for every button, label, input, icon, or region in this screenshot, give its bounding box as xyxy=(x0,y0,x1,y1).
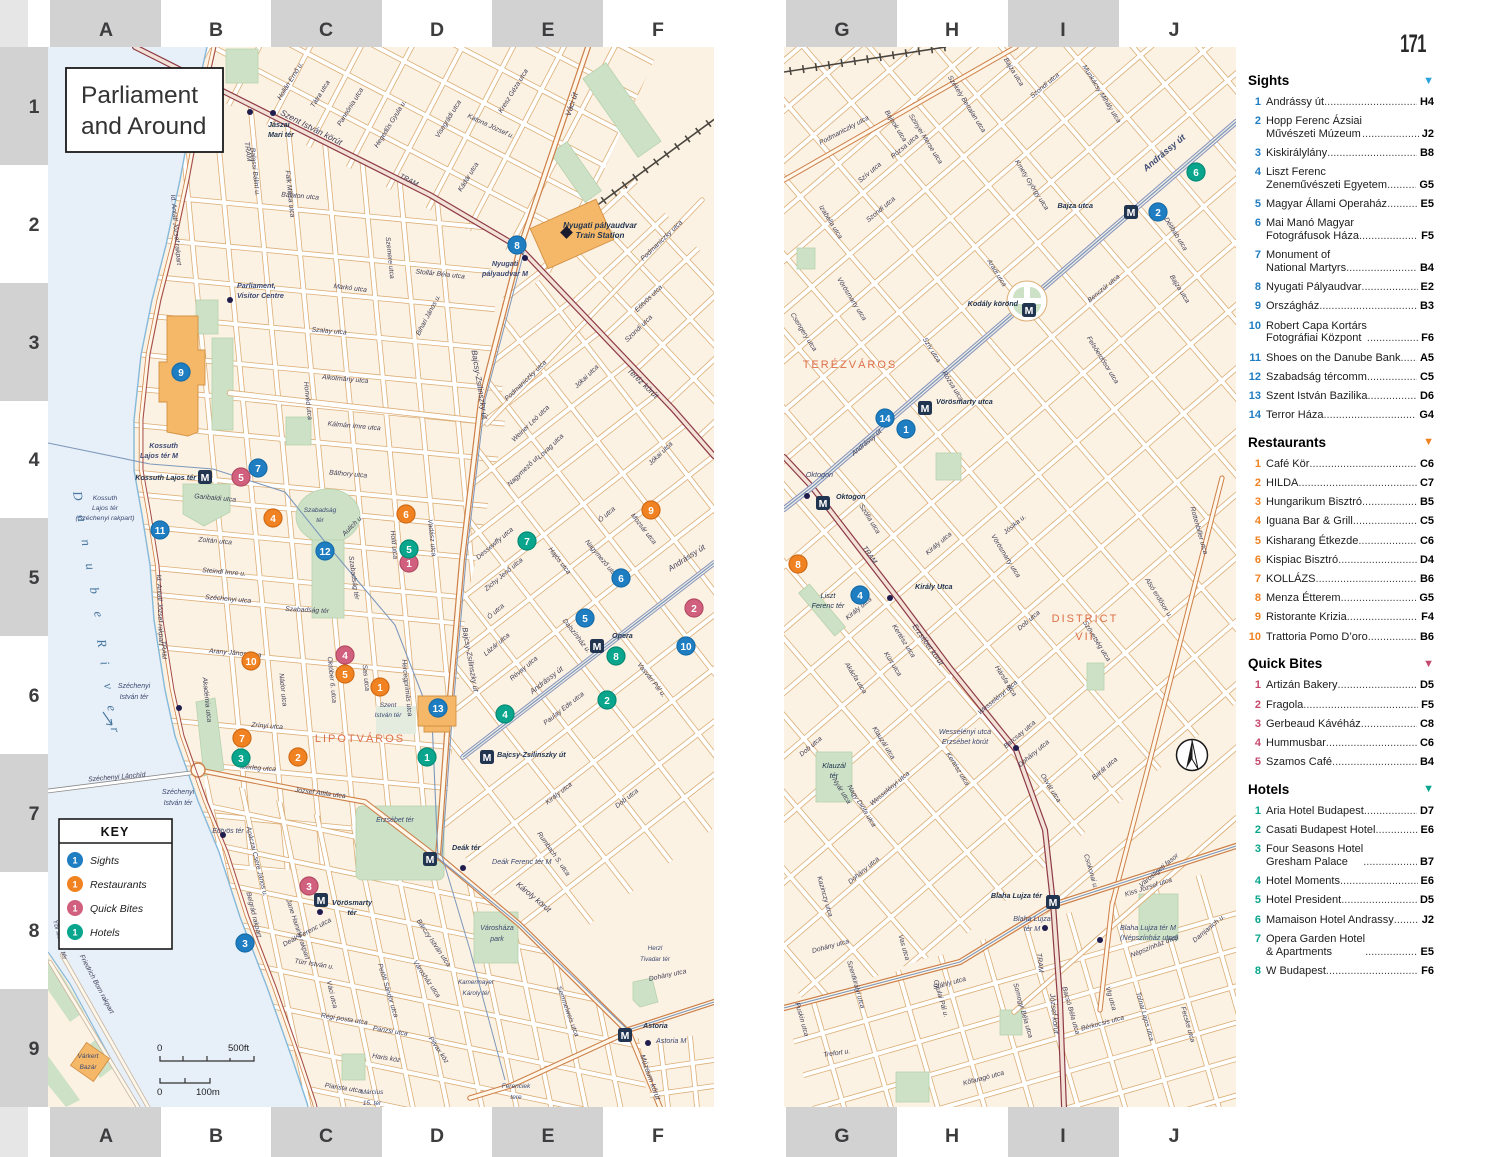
svg-text:Deák tér: Deák tér xyxy=(452,843,482,852)
svg-text:Mari tér: Mari tér xyxy=(268,130,295,139)
svg-text:Bajcsy-Zsilinszky út: Bajcsy-Zsilinszky út xyxy=(497,750,566,759)
svg-text:Szent: Szent xyxy=(380,702,398,709)
svg-text:15. tér: 15. tér xyxy=(363,1100,382,1107)
svg-text:6: 6 xyxy=(618,574,624,585)
svg-text:5: 5 xyxy=(238,473,244,484)
svg-text:5: 5 xyxy=(29,567,40,589)
svg-text:1: 1 xyxy=(424,753,430,764)
svg-text:TRAM: TRAM xyxy=(160,641,168,660)
svg-text:B: B xyxy=(209,19,223,41)
svg-text:11: 11 xyxy=(155,526,166,537)
svg-text:KEY: KEY xyxy=(101,825,130,839)
svg-text:0: 0 xyxy=(157,1043,162,1054)
svg-text:Lajos tér M: Lajos tér M xyxy=(140,451,179,460)
svg-text:4: 4 xyxy=(342,651,348,662)
svg-text:Vörösmarty utca: Vörösmarty utca xyxy=(936,397,993,406)
svg-text:3: 3 xyxy=(306,882,312,893)
svg-text:9: 9 xyxy=(29,1038,40,1060)
svg-text:DISTRICT: DISTRICT xyxy=(1052,613,1119,625)
svg-text:5: 5 xyxy=(342,670,348,681)
svg-text:6: 6 xyxy=(29,685,40,707)
svg-text:8: 8 xyxy=(795,560,801,571)
svg-text:VII: VII xyxy=(1075,631,1094,643)
svg-text:I: I xyxy=(1060,19,1065,41)
svg-text:Vörösmarty: Vörösmarty xyxy=(332,898,373,907)
svg-text:István tér: István tér xyxy=(375,712,403,719)
svg-text:A: A xyxy=(99,1125,113,1147)
svg-text:tere: tere xyxy=(510,1094,522,1101)
svg-text:G: G xyxy=(834,1125,849,1147)
svg-text:M: M xyxy=(201,472,210,484)
svg-text:Blaha Lujza tér: Blaha Lujza tér xyxy=(991,891,1043,900)
svg-text:Restaurants: Restaurants xyxy=(90,879,147,891)
svg-text:Wesselényi utca: Wesselényi utca xyxy=(939,727,991,736)
svg-text:M: M xyxy=(426,854,435,866)
svg-text:F: F xyxy=(652,19,664,41)
svg-text:Kodály körönd: Kodály körönd xyxy=(968,299,1019,308)
svg-text:pályaudvar M: pályaudvar M xyxy=(481,269,529,278)
svg-text:4: 4 xyxy=(502,710,508,721)
svg-text:3: 3 xyxy=(242,939,248,950)
svg-text:Quick Bites: Quick Bites xyxy=(90,903,144,915)
svg-text:tér M: tér M xyxy=(1024,924,1040,933)
svg-text:Bajza utca: Bajza utca xyxy=(1057,201,1093,210)
svg-text:tér: tér xyxy=(830,771,839,780)
svg-text:6: 6 xyxy=(1193,168,1199,179)
svg-text:Deák Ferenc tér M: Deák Ferenc tér M xyxy=(492,857,552,866)
svg-text:Parliament: Parliament xyxy=(81,82,198,109)
svg-text:10: 10 xyxy=(680,642,692,653)
svg-text:Parliament,: Parliament, xyxy=(237,281,276,290)
svg-text:9: 9 xyxy=(648,506,654,517)
svg-text:6: 6 xyxy=(403,510,409,521)
svg-text:10: 10 xyxy=(245,657,257,668)
svg-text:1: 1 xyxy=(72,903,77,913)
svg-text:Opera: Opera xyxy=(612,631,633,640)
svg-text:500ft: 500ft xyxy=(228,1043,249,1054)
svg-text:Klauzál: Klauzál xyxy=(822,761,846,770)
svg-text:Király Utca: Király Utca xyxy=(915,582,953,591)
svg-text:7: 7 xyxy=(255,464,261,475)
svg-text:Sights: Sights xyxy=(90,855,120,867)
svg-text:5: 5 xyxy=(406,545,412,556)
svg-text:tér: tér xyxy=(347,908,357,917)
svg-text:F: F xyxy=(652,1125,664,1147)
svg-text:2: 2 xyxy=(295,753,301,764)
svg-text:2: 2 xyxy=(691,604,697,615)
svg-text:Erzsébet tér: Erzsébet tér xyxy=(376,817,414,824)
svg-text:Széchenyi: Széchenyi xyxy=(118,683,151,690)
svg-text:LIPÓTVÁROS: LIPÓTVÁROS xyxy=(315,732,405,745)
svg-text:H: H xyxy=(945,1125,959,1147)
svg-text:1: 1 xyxy=(72,927,77,937)
svg-text:J: J xyxy=(1169,19,1180,41)
svg-text:M: M xyxy=(483,752,492,764)
svg-text:D: D xyxy=(430,1125,444,1147)
svg-text:14: 14 xyxy=(879,414,891,425)
svg-text:Ferenc tér: Ferenc tér xyxy=(812,601,845,610)
svg-text:Március: Március xyxy=(361,1089,385,1096)
svg-text:M: M xyxy=(593,641,602,653)
svg-text:Liszt: Liszt xyxy=(821,591,837,600)
svg-text:A: A xyxy=(99,19,113,41)
svg-text:Városháza: Városháza xyxy=(480,925,514,932)
svg-text:Jászai: Jászai xyxy=(268,120,291,129)
svg-text:Herzl: Herzl xyxy=(648,945,663,952)
svg-text:4: 4 xyxy=(857,591,863,602)
svg-text:and Around: and Around xyxy=(81,113,206,140)
svg-text:7: 7 xyxy=(29,803,40,825)
svg-text:M: M xyxy=(819,498,828,510)
svg-text:Lajos tér: Lajos tér xyxy=(92,505,119,512)
svg-text:Nyugati: Nyugati xyxy=(492,259,519,268)
svg-text:Blaha Lujza: Blaha Lujza xyxy=(1013,914,1051,923)
svg-text:Ferenciek: Ferenciek xyxy=(502,1083,531,1090)
svg-text:M: M xyxy=(1127,207,1136,219)
svg-text:Kossuth Lajos tér: Kossuth Lajos tér xyxy=(135,473,197,482)
svg-text:M: M xyxy=(1025,305,1034,317)
svg-text:4: 4 xyxy=(29,449,40,471)
svg-text:9: 9 xyxy=(178,368,184,379)
svg-text:1: 1 xyxy=(29,96,40,118)
svg-text:Károly tér: Károly tér xyxy=(463,990,491,997)
svg-text:I: I xyxy=(1060,1125,1065,1147)
svg-text:Oktogon: Oktogon xyxy=(836,492,866,501)
svg-text:Kossuth: Kossuth xyxy=(149,441,178,450)
svg-text:3: 3 xyxy=(238,754,244,765)
svg-text:Kossuth: Kossuth xyxy=(93,495,118,502)
svg-text:3: 3 xyxy=(29,332,40,354)
svg-text:Bazár: Bazár xyxy=(80,1064,98,1071)
svg-text:Astoria: Astoria xyxy=(642,1021,668,1030)
svg-text:park: park xyxy=(489,936,504,943)
svg-text:7: 7 xyxy=(524,537,530,548)
svg-text:C: C xyxy=(319,19,333,41)
svg-text:H: H xyxy=(945,19,959,41)
svg-text:0: 0 xyxy=(157,1087,162,1098)
svg-text:E: E xyxy=(541,1125,554,1147)
svg-text:Hotels: Hotels xyxy=(90,927,121,939)
svg-text:2: 2 xyxy=(1155,208,1161,219)
svg-text:8: 8 xyxy=(613,652,619,663)
svg-text:(Népszínház utca): (Népszínház utca) xyxy=(1120,933,1178,942)
svg-text:2: 2 xyxy=(29,214,40,236)
svg-text:Kamermayer: Kamermayer xyxy=(458,979,495,986)
svg-text:M: M xyxy=(921,403,930,415)
svg-text:1: 1 xyxy=(72,879,77,889)
svg-text:E: E xyxy=(541,19,554,41)
svg-text:Erzsébet körút: Erzsébet körút xyxy=(942,737,989,746)
svg-text:B: B xyxy=(209,1125,223,1147)
svg-text:Szabadság: Szabadság xyxy=(304,507,337,514)
svg-text:M: M xyxy=(1049,897,1058,909)
svg-text:5: 5 xyxy=(582,614,588,625)
svg-text:D: D xyxy=(430,19,444,41)
svg-text:Blaha Lujza tér M: Blaha Lujza tér M xyxy=(1120,923,1176,932)
svg-text:Várkert: Várkert xyxy=(78,1053,100,1060)
svg-text:4: 4 xyxy=(270,514,276,525)
svg-text:8: 8 xyxy=(514,241,520,252)
svg-text:12: 12 xyxy=(319,547,331,558)
svg-text:1: 1 xyxy=(903,425,909,436)
svg-text:István tér: István tér xyxy=(164,800,193,807)
svg-text:Astoria M: Astoria M xyxy=(655,1036,686,1045)
svg-text:Tivadar tér: Tivadar tér xyxy=(640,956,671,963)
svg-text:8: 8 xyxy=(29,920,40,942)
svg-text:Oktogon: Oktogon xyxy=(806,470,833,479)
svg-text:István tér: István tér xyxy=(120,694,149,701)
svg-text:C: C xyxy=(319,1125,333,1147)
svg-text:1: 1 xyxy=(72,855,77,865)
svg-text:2: 2 xyxy=(604,696,610,707)
svg-text:Széchenyi: Széchenyi xyxy=(162,789,195,796)
svg-text:M: M xyxy=(317,895,326,907)
svg-text:100m: 100m xyxy=(196,1087,220,1098)
svg-text:TERÉZVÁROS: TERÉZVÁROS xyxy=(803,358,898,371)
svg-text:Nyugati pályaudvar: Nyugati pályaudvar xyxy=(563,221,638,230)
svg-text:1: 1 xyxy=(406,559,412,570)
svg-text:Train Station: Train Station xyxy=(576,231,625,240)
svg-text:G: G xyxy=(834,19,849,41)
svg-text:tér: tér xyxy=(316,517,324,524)
svg-text:Visitor Centre: Visitor Centre xyxy=(237,291,284,300)
svg-text:7: 7 xyxy=(239,734,245,745)
svg-text:Eötvös tér: Eötvös tér xyxy=(212,828,244,835)
svg-text:1: 1 xyxy=(377,683,383,694)
svg-text:13: 13 xyxy=(432,704,444,715)
svg-text:J: J xyxy=(1169,1125,1180,1147)
svg-text:M: M xyxy=(621,1030,630,1042)
